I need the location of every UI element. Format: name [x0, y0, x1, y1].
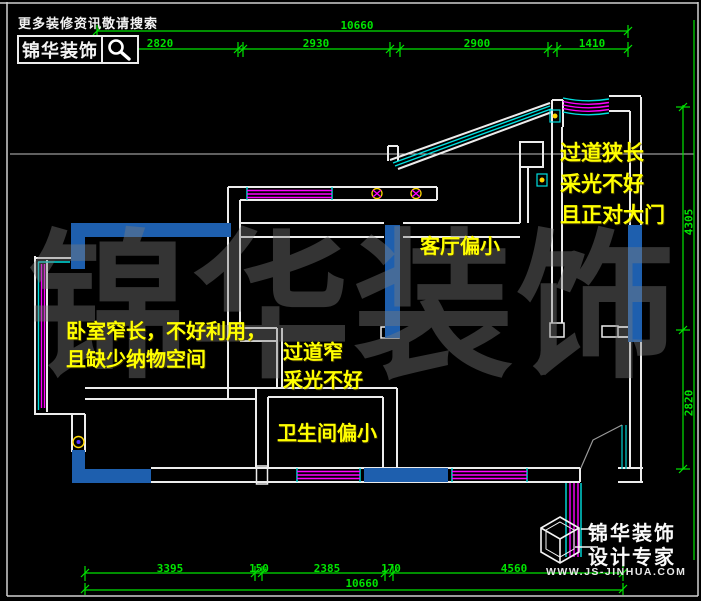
annotation-living-room: 客厅偏小	[420, 233, 500, 261]
dim-bottom-seg-5: 4560	[501, 562, 528, 575]
dim-top-overall: 10660	[340, 19, 373, 32]
dim-bottom-overall: 10660	[345, 577, 378, 590]
search-hint-text: 更多装修资讯敬请搜索	[18, 13, 158, 32]
dim-right-seg-2: 2820	[683, 390, 696, 417]
cad-canvas: 锦华装饰 10660 2820 2930 2900 1410 4305 2820…	[0, 0, 701, 601]
dim-top-seg-3: 2900	[464, 37, 491, 50]
brand-logo-box: 锦华装饰	[17, 35, 139, 64]
dim-top-seg-4: 1410	[579, 37, 606, 50]
entry-door	[580, 425, 626, 482]
annotation-bedroom: 卧室窄长，不好利用， 且缺少纳物空间	[66, 318, 266, 374]
brand-name: 锦华装饰	[19, 37, 101, 63]
dim-top-seg-1: 2820	[147, 37, 174, 50]
dim-bottom-seg-2: 150	[249, 562, 269, 575]
dim-bottom-seg-3: 2385	[314, 562, 341, 575]
door-swing-arc	[580, 425, 622, 470]
annotation-corridor: 过道窄 采光不好	[283, 339, 363, 395]
dim-top-seg-2: 2930	[303, 37, 330, 50]
dim-bottom-seg-1: 3395	[157, 562, 184, 575]
footer-url: WWW.JS-JINHUA.COM	[546, 566, 686, 578]
annotation-entry-hall: 过道狭长 采光不好 且正对大门	[560, 138, 665, 231]
search-icon	[103, 37, 134, 62]
dim-bottom-seg-4: 170	[381, 562, 401, 575]
dim-right-seg-1: 4305	[683, 209, 696, 236]
sheet-frame	[0, 2, 698, 596]
annotation-bathroom: 卫生间偏小	[277, 420, 377, 448]
floor-plan-drawing	[0, 0, 701, 601]
